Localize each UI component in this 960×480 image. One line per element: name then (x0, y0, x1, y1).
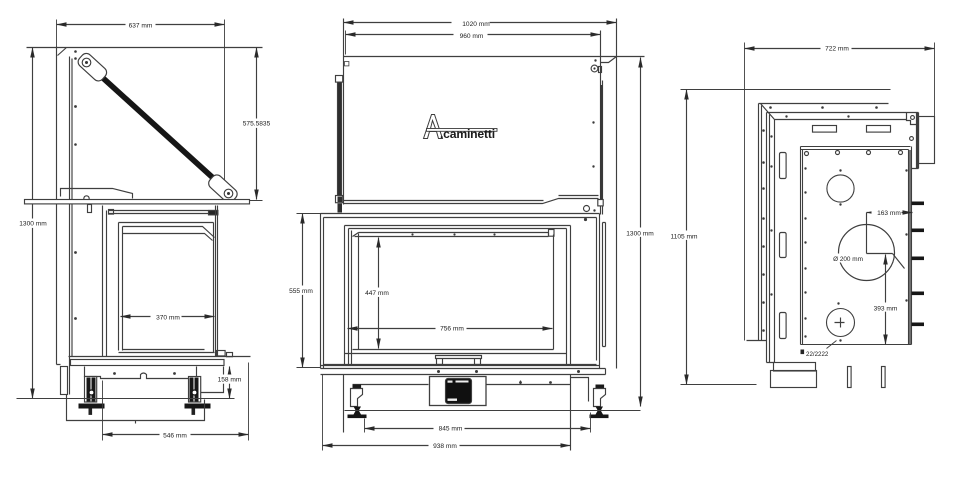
svg-text:722 mm: 722 mm (825, 46, 849, 53)
svg-text:.caminetti: .caminetti (440, 127, 495, 141)
svg-text:960 mm: 960 mm (460, 33, 484, 40)
svg-text:370 mm: 370 mm (156, 315, 180, 322)
svg-text:158 mm: 158 mm (218, 377, 242, 384)
svg-text:756 mm: 756 mm (440, 325, 464, 332)
svg-text:1105 mm: 1105 mm (671, 233, 699, 240)
svg-text:845 mm: 845 mm (439, 425, 463, 432)
svg-text:575.5835: 575.5835 (243, 120, 271, 127)
svg-text:447 mm: 447 mm (365, 290, 389, 297)
svg-text:637 mm: 637 mm (129, 22, 153, 29)
svg-text:1300 mm: 1300 mm (19, 220, 47, 227)
svg-text:1300 mm: 1300 mm (626, 230, 654, 237)
svg-text:555 mm: 555 mm (289, 288, 313, 295)
svg-text:393 mm: 393 mm (874, 305, 898, 312)
svg-text:22/2222: 22/2222 (806, 351, 829, 358)
svg-text:163 mm: 163 mm (877, 210, 901, 217)
svg-text:Ø 200 mm: Ø 200 mm (833, 256, 863, 263)
svg-text:938 mm: 938 mm (433, 443, 457, 450)
svg-text:546 mm: 546 mm (163, 432, 187, 439)
svg-text:1020 mm: 1020 mm (462, 21, 490, 28)
